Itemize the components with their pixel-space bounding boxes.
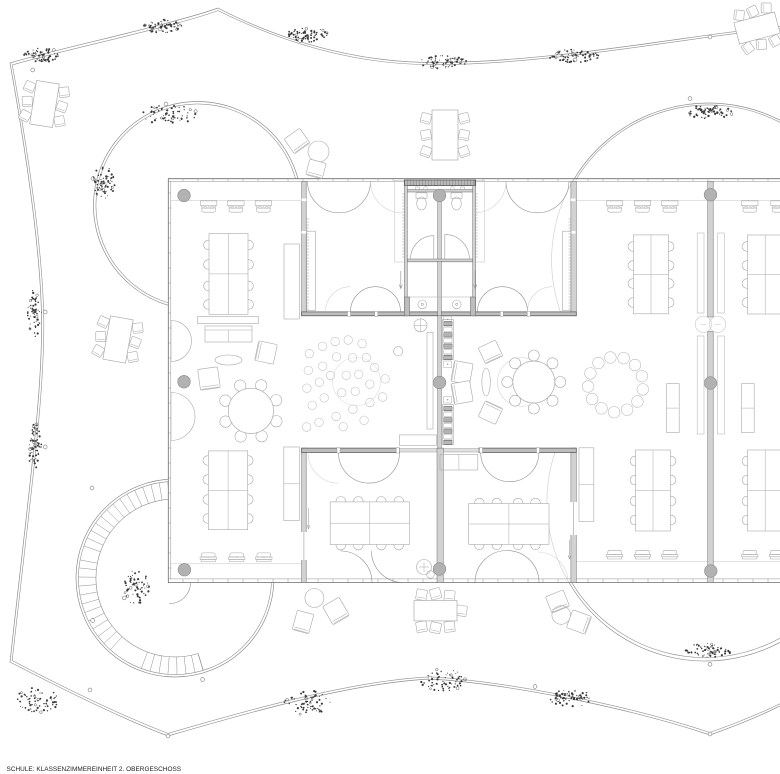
svg-text:SCHULE: KLASSENZIMMEREINHEIT 2: SCHULE: KLASSENZIMMEREINHEIT 2. OBERGESC… — [7, 766, 182, 773]
